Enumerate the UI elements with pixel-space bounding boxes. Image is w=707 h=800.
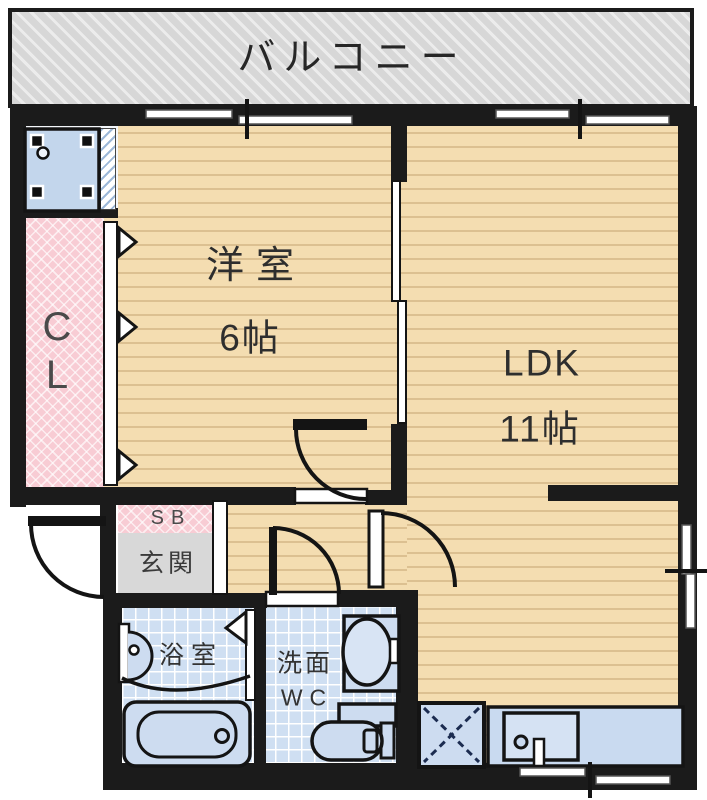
western-room-door: [293, 419, 367, 503]
balcony-label: バルコニー: [237, 39, 466, 77]
western-room-window: [146, 99, 352, 139]
floor-plan: バルコニー 洋室 6帖 LDK 11帖 CL SB 玄関 浴室 洗面 WC: [0, 0, 707, 800]
western-room-size: 6帖: [219, 320, 281, 357]
ldk-top-window: [496, 99, 669, 139]
sink-unit: [343, 616, 399, 691]
closet-door-markers: [119, 228, 136, 479]
bathroom-curtain-arc: [122, 676, 250, 690]
bathroom-label: 浴室: [159, 644, 223, 669]
ldk-size: 11帖: [499, 411, 580, 448]
refrigerator-space: [419, 703, 484, 767]
washroom-door: [266, 527, 339, 606]
shoe-box-label: SB: [151, 508, 192, 528]
entrance-label: 玄関: [139, 552, 197, 577]
kitchen-sink-counter: [488, 707, 683, 766]
ldk-door: [369, 511, 455, 587]
wc-label: WC: [281, 687, 333, 710]
bathroom-door-marker: [226, 612, 246, 643]
washing-machine-pan: [25, 129, 99, 211]
closet-label: CL: [37, 305, 77, 401]
toilet: [312, 704, 396, 760]
fixtures-layer: [0, 0, 707, 800]
bathtub: [124, 702, 250, 766]
ldk-side-window: [665, 525, 707, 628]
washbasin: [119, 624, 152, 682]
front-door: [28, 516, 106, 597]
ldk-label: LDK: [503, 345, 581, 382]
washroom-label: 洗面: [277, 652, 333, 677]
western-room-label: 洋室: [206, 247, 306, 285]
